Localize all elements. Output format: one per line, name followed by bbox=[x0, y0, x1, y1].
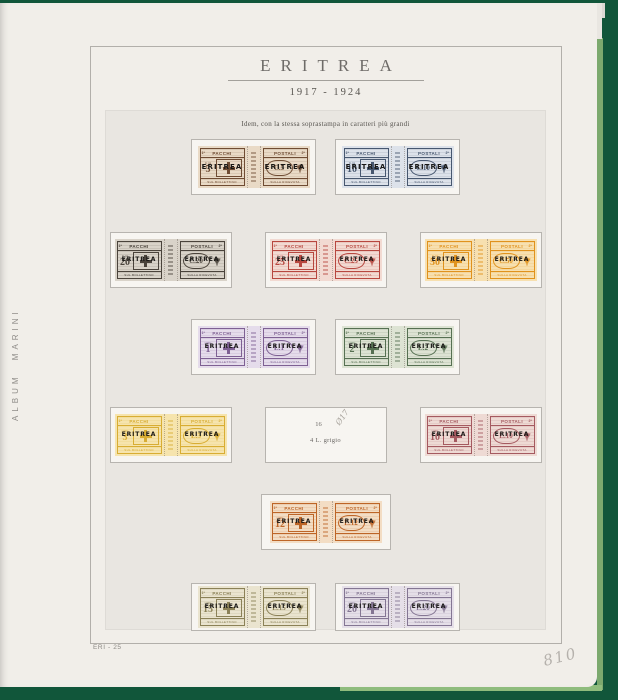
stamp-mount: 1ª PACCHI LIRE 3 SUL BOLLETTINO ERITREA bbox=[110, 407, 232, 463]
stamp-bollettino-label: SUL BOLLETTINO bbox=[201, 358, 244, 365]
stamp-postali-label: POSTALI bbox=[418, 591, 440, 596]
stamp-left-part: 1ª PACCHI C.mi 20 SUL BOLLETTINO ERITREA bbox=[115, 239, 164, 281]
stamp-bollettino-label: SUL BOLLETTINO bbox=[118, 446, 161, 453]
stamp-right-part: POSTALI 2ª L.1 SULLA RICEVUTA ERITREA bbox=[261, 326, 310, 368]
column-ornament-icon bbox=[391, 586, 405, 628]
column-ornament-icon bbox=[391, 326, 405, 368]
stamp-right-part: POSTALI 2ª C.50 SULLA RICEVUTA ERITREA bbox=[488, 239, 537, 281]
stamp-pair: 1ª PACCHI C.mi 20 SUL BOLLETTINO ERITREA bbox=[115, 239, 227, 281]
handwritten-page-number: 810 bbox=[541, 644, 579, 670]
title-underline bbox=[228, 80, 424, 81]
page-header: ERITREA 1917 - 1924 bbox=[91, 56, 561, 98]
page-stack-step bbox=[602, 3, 605, 18]
stamp-top-band: POSTALI 2ª bbox=[491, 242, 534, 251]
stamp-part-number: 2ª bbox=[446, 591, 450, 595]
stamp-top-band: POSTALI 2ª bbox=[408, 589, 451, 598]
eritrea-overprint: ERITREA bbox=[198, 343, 247, 350]
stamp-left-part: 1ª PACCHI LIRE 1 SUL BOLLETTINO ERITREA bbox=[198, 326, 247, 368]
stamp-postali-label: POSTALI bbox=[274, 151, 296, 156]
stamp-bollettino-label: SUL BOLLETTINO bbox=[345, 358, 388, 365]
stamp-part-number: 2ª bbox=[446, 151, 450, 155]
stamp-left-part: 1ª PACCHI C.mi 25 SUL BOLLETTINO ERITREA bbox=[270, 239, 319, 281]
eritrea-overprint: ERITREA bbox=[261, 163, 310, 171]
stamp-row: 1ª PACCHI C.mi 20 SUL BOLLETTINO ERITREA bbox=[106, 232, 545, 288]
eritrea-overprint: ERITREA bbox=[198, 163, 247, 171]
column-ornament-icon bbox=[474, 239, 488, 281]
stamp-pacchi-label: PACCHI bbox=[356, 591, 375, 596]
stamp-right-part: POSTALI 2ª L.10 SULLA RICEVUTA ERITREA bbox=[488, 414, 537, 456]
stamp-part-number: 2ª bbox=[446, 331, 450, 335]
stamp-ricevuta-label: SULLA RICEVUTA bbox=[181, 271, 224, 278]
stamp-row: 1ª PACCHI C.mi 5 SUL BOLLETTINO ERITREA bbox=[106, 139, 545, 195]
stamp-bollettino-label: SUL BOLLETTINO bbox=[273, 533, 316, 540]
eritrea-overprint: ERITREA bbox=[425, 256, 474, 263]
column-ornament-icon bbox=[319, 239, 333, 281]
stamp-top-band: 1ª PACCHI bbox=[201, 589, 244, 598]
eritrea-overprint: ERITREA bbox=[115, 256, 164, 263]
stamp-part-number: 1ª bbox=[119, 244, 123, 248]
stamp-left-part: 1ª PACCHI LIRE 2 SUL BOLLETTINO ERITREA bbox=[342, 326, 391, 368]
stamp-part-number: 1ª bbox=[274, 244, 278, 248]
stamp-left-part: 1ª PACCHI C.mi 10 SUL BOLLETTINO ERITREA bbox=[342, 146, 391, 188]
stamp-right-part: POSTALI 2ª L.12 SULLA RICEVUTA ERITREA bbox=[333, 501, 382, 543]
stamp-right-part: POSTALI 2ª C.20 SULLA RICEVUTA ERITREA bbox=[178, 239, 227, 281]
stamp-mount: 1ª PACCHI C.mi 25 SUL BOLLETTINO ERITREA bbox=[265, 232, 387, 288]
stamp-ricevuta-label: SULLA RICEVUTA bbox=[408, 178, 451, 185]
stamp-left-part: 1ª PACCHI C.mi 50 SUL BOLLETTINO ERITREA bbox=[425, 239, 474, 281]
stamp-right-part: POSTALI 2ª C.25 SULLA RICEVUTA ERITREA bbox=[333, 239, 382, 281]
catalog-number: 16 bbox=[252, 421, 386, 428]
stamp-pair: 1ª PACCHI C.mi 25 SUL BOLLETTINO ERITREA bbox=[270, 239, 382, 281]
stamp-ricevuta-label: SULLA RICEVUTA bbox=[264, 358, 307, 365]
stamp-part-number: 1ª bbox=[274, 506, 278, 510]
stamp-ricevuta-label: SULLA RICEVUTA bbox=[264, 178, 307, 185]
stamp-pair: 1ª PACCHI LIRE 10 SUL BOLLETTINO ERITREA bbox=[425, 414, 537, 456]
stamp-pacchi-label: PACCHI bbox=[284, 244, 303, 249]
stamp-top-band: 1ª PACCHI bbox=[273, 242, 316, 251]
column-ornament-icon bbox=[474, 414, 488, 456]
stamp-postali-label: POSTALI bbox=[191, 419, 213, 424]
stamp-top-band: POSTALI 2ª bbox=[264, 329, 307, 338]
stamp-pair: 1ª PACCHI C.mi 5 SUL BOLLETTINO ERITREA bbox=[198, 146, 310, 188]
stamp-part-number: 2ª bbox=[529, 244, 533, 248]
stamp-right-part: POSTALI 2ª C.10 SULLA RICEVUTA ERITREA bbox=[405, 146, 454, 188]
stamp-top-band: POSTALI 2ª bbox=[264, 589, 307, 598]
stamps-panel: Idem, con la stessa soprastampa in carat… bbox=[105, 110, 546, 630]
stamp-postali-label: POSTALI bbox=[346, 244, 368, 249]
eritrea-overprint: ERITREA bbox=[270, 256, 319, 263]
stamp-right-part: POSTALI 2ª L.20 SULLA RICEVUTA ERITREA bbox=[405, 586, 454, 628]
stamp-pair: 1ª PACCHI LIRE 20 SUL BOLLETTINO ERITREA bbox=[342, 586, 454, 628]
stamp-top-band: 1ª PACCHI bbox=[345, 589, 388, 598]
stamp-top-band: 1ª PACCHI bbox=[428, 242, 471, 251]
stamp-bollettino-label: SUL BOLLETTINO bbox=[201, 178, 244, 185]
stamp-postali-label: POSTALI bbox=[418, 151, 440, 156]
stamp-top-band: POSTALI 2ª bbox=[408, 149, 451, 158]
stamp-mount: 1ª PACCHI LIRE 15 SUL BOLLETTINO ERITREA bbox=[191, 583, 316, 631]
stamp-right-part: POSTALI 2ª L.3 SULLA RICEVUTA ERITREA bbox=[178, 414, 227, 456]
page-edge-highlight bbox=[597, 38, 603, 690]
stamp-rows: 1ª PACCHI C.mi 5 SUL BOLLETTINO ERITREA bbox=[106, 111, 545, 629]
stamp-part-number: 1ª bbox=[346, 591, 350, 595]
eritrea-overprint: ERITREA bbox=[405, 603, 454, 610]
stamp-left-part: 1ª PACCHI C.mi 5 SUL BOLLETTINO ERITREA bbox=[198, 146, 247, 188]
stamp-postali-label: POSTALI bbox=[191, 244, 213, 249]
stamp-mount: 1ª PACCHI C.mi 10 SUL BOLLETTINO ERITREA bbox=[335, 139, 460, 195]
stamp-row: 1ª PACCHI LIRE 15 SUL BOLLETTINO ERITREA bbox=[106, 583, 545, 631]
stamp-pacchi-label: PACCHI bbox=[439, 419, 458, 424]
stamp-ricevuta-label: SULLA RICEVUTA bbox=[336, 533, 379, 540]
stamp-part-number: 2ª bbox=[219, 244, 223, 248]
stamp-ricevuta-label: SULLA RICEVUTA bbox=[408, 618, 451, 625]
eritrea-overprint: ERITREA bbox=[425, 431, 474, 438]
eritrea-overprint: ERITREA bbox=[261, 603, 310, 610]
stamp-top-band: POSTALI 2ª bbox=[181, 417, 224, 426]
missing-stamp-placeholder: 16 Ø17 4 L. grigio bbox=[266, 408, 386, 462]
stamp-bollettino-label: SUL BOLLETTINO bbox=[345, 618, 388, 625]
page-frame: ERITREA 1917 - 1924 Idem, con la stessa … bbox=[90, 46, 562, 644]
stamp-part-number: 2ª bbox=[302, 591, 306, 595]
stamp-top-band: 1ª PACCHI bbox=[201, 329, 244, 338]
stamp-pacchi-label: PACCHI bbox=[129, 419, 148, 424]
stamp-part-number: 1ª bbox=[429, 244, 433, 248]
stamp-part-number: 2ª bbox=[529, 419, 533, 423]
stamp-top-band: 1ª PACCHI bbox=[273, 504, 316, 513]
stamp-pacchi-label: PACCHI bbox=[284, 506, 303, 511]
stamp-mount: 1ª PACCHI LIRE 2 SUL BOLLETTINO ERITREA bbox=[335, 319, 460, 375]
stamp-row: 1ª PACCHI LIRE 1 SUL BOLLETTINO ERITREA bbox=[106, 319, 545, 375]
stamp-top-band: POSTALI 2ª bbox=[181, 242, 224, 251]
stamp-pair: 1ª PACCHI LIRE 2 SUL BOLLETTINO ERITREA bbox=[342, 326, 454, 368]
stamp-bollettino-label: SUL BOLLETTINO bbox=[345, 178, 388, 185]
stamp-pacchi-label: PACCHI bbox=[129, 244, 148, 249]
stamp-pair: 1ª PACCHI LIRE 3 SUL BOLLETTINO ERITREA bbox=[115, 414, 227, 456]
stamp-ricevuta-label: SULLA RICEVUTA bbox=[408, 358, 451, 365]
stamp-mount: 1ª PACCHI LIRE 1 SUL BOLLETTINO ERITREA bbox=[191, 319, 316, 375]
column-ornament-icon bbox=[247, 326, 261, 368]
stamp-mount: 1ª PACCHI LIRE 10 SUL BOLLETTINO ERITREA bbox=[420, 407, 542, 463]
column-ornament-icon bbox=[247, 586, 261, 628]
eritrea-overprint: ERITREA bbox=[342, 603, 391, 610]
stamp-left-part: 1ª PACCHI LIRE 3 SUL BOLLETTINO ERITREA bbox=[115, 414, 164, 456]
stamp-row: 1ª PACCHI LIRE 12 SUL BOLLETTINO ERITREA bbox=[106, 494, 545, 550]
stamp-postali-label: POSTALI bbox=[274, 331, 296, 336]
stamp-right-part: POSTALI 2ª L.15 SULLA RICEVUTA ERITREA bbox=[261, 586, 310, 628]
stamp-ricevuta-label: SULLA RICEVUTA bbox=[336, 271, 379, 278]
stamp-mount: 1ª PACCHI C.mi 20 SUL BOLLETTINO ERITREA bbox=[110, 232, 232, 288]
stamp-bollettino-label: SUL BOLLETTINO bbox=[428, 271, 471, 278]
stamp-bollettino-label: SUL BOLLETTINO bbox=[273, 271, 316, 278]
eritrea-overprint: ERITREA bbox=[115, 431, 164, 438]
stamp-part-number: 1ª bbox=[119, 419, 123, 423]
stamp-mount: 1ª PACCHI LIRE 20 SUL BOLLETTINO ERITREA bbox=[335, 583, 460, 631]
stamp-bollettino-label: SUL BOLLETTINO bbox=[118, 271, 161, 278]
stamp-postali-label: POSTALI bbox=[418, 331, 440, 336]
stamp-part-number: 2ª bbox=[302, 151, 306, 155]
stamp-part-number: 2ª bbox=[374, 244, 378, 248]
stamp-top-band: POSTALI 2ª bbox=[336, 242, 379, 251]
stamp-top-band: 1ª PACCHI bbox=[201, 149, 244, 158]
eritrea-overprint: ERITREA bbox=[405, 343, 454, 350]
stamp-row: 1ª PACCHI LIRE 3 SUL BOLLETTINO ERITREA bbox=[106, 407, 545, 463]
stamp-bollettino-label: SUL BOLLETTINO bbox=[428, 446, 471, 453]
stamp-part-number: 1ª bbox=[202, 591, 206, 595]
stamp-postali-label: POSTALI bbox=[274, 591, 296, 596]
album-photo: ALBUM MARINI ERITREA 1917 - 1924 Idem, c… bbox=[0, 0, 618, 700]
eritrea-overprint: ERITREA bbox=[333, 256, 382, 263]
stamp-top-band: 1ª PACCHI bbox=[345, 329, 388, 338]
stamp-top-band: 1ª PACCHI bbox=[118, 242, 161, 251]
stamp-left-part: 1ª PACCHI LIRE 15 SUL BOLLETTINO ERITREA bbox=[198, 586, 247, 628]
stamp-postali-label: POSTALI bbox=[501, 419, 523, 424]
stamp-left-part: 1ª PACCHI LIRE 20 SUL BOLLETTINO ERITREA bbox=[342, 586, 391, 628]
eritrea-overprint: ERITREA bbox=[198, 603, 247, 610]
stamp-part-number: 2ª bbox=[374, 506, 378, 510]
stamp-ricevuta-label: SULLA RICEVUTA bbox=[264, 618, 307, 625]
stamp-pair: 1ª PACCHI C.mi 10 SUL BOLLETTINO ERITREA bbox=[342, 146, 454, 188]
stamp-postali-label: POSTALI bbox=[346, 506, 368, 511]
stamp-left-part: 1ª PACCHI LIRE 10 SUL BOLLETTINO ERITREA bbox=[425, 414, 474, 456]
column-ornament-icon bbox=[164, 414, 178, 456]
stamp-pair: 1ª PACCHI LIRE 1 SUL BOLLETTINO ERITREA bbox=[198, 326, 310, 368]
stamp-pacchi-label: PACCHI bbox=[356, 151, 375, 156]
stamp-part-number: 1ª bbox=[202, 151, 206, 155]
stamp-mount: 1ª PACCHI C.mi 50 SUL BOLLETTINO ERITREA bbox=[420, 232, 542, 288]
eritrea-overprint: ERITREA bbox=[178, 431, 227, 438]
stamp-left-part: 1ª PACCHI LIRE 12 SUL BOLLETTINO ERITREA bbox=[270, 501, 319, 543]
stamp-part-number: 2ª bbox=[302, 331, 306, 335]
stamp-pair: 1ª PACCHI LIRE 15 SUL BOLLETTINO ERITREA bbox=[198, 586, 310, 628]
stamp-right-part: POSTALI 2ª L.2 SULLA RICEVUTA ERITREA bbox=[405, 326, 454, 368]
eritrea-overprint: ERITREA bbox=[270, 518, 319, 525]
stamp-mount: 1ª PACCHI C.mi 5 SUL BOLLETTINO ERITREA bbox=[191, 139, 316, 195]
stamp-part-number: 1ª bbox=[429, 419, 433, 423]
album-brand-label: ALBUM MARINI bbox=[11, 291, 20, 421]
stamp-pacchi-label: PACCHI bbox=[212, 591, 231, 596]
stamp-postali-label: POSTALI bbox=[501, 244, 523, 249]
stamp-top-band: 1ª PACCHI bbox=[345, 149, 388, 158]
stamp-pacchi-label: PACCHI bbox=[439, 244, 458, 249]
stamp-top-band: 1ª PACCHI bbox=[428, 417, 471, 426]
column-ornament-icon bbox=[319, 501, 333, 543]
eritrea-overprint: ERITREA bbox=[342, 343, 391, 350]
stamp-top-band: POSTALI 2ª bbox=[408, 329, 451, 338]
stamp-pacchi-label: PACCHI bbox=[212, 151, 231, 156]
eritrea-overprint: ERITREA bbox=[342, 163, 391, 171]
stamp-top-band: 1ª PACCHI bbox=[118, 417, 161, 426]
eritrea-overprint: ERITREA bbox=[405, 163, 454, 171]
column-ornament-icon bbox=[247, 146, 261, 188]
stamp-top-band: POSTALI 2ª bbox=[336, 504, 379, 513]
album-page: ALBUM MARINI ERITREA 1917 - 1924 Idem, c… bbox=[0, 3, 597, 687]
placeholder-mount: 16 Ø17 4 L. grigio bbox=[265, 407, 387, 463]
stamp-top-band: POSTALI 2ª bbox=[491, 417, 534, 426]
stamp-pacchi-label: PACCHI bbox=[212, 331, 231, 336]
stamp-part-number: 1ª bbox=[202, 331, 206, 335]
stamp-pair: 1ª PACCHI C.mi 50 SUL BOLLETTINO ERITREA bbox=[425, 239, 537, 281]
page-title: ERITREA bbox=[91, 56, 561, 76]
stamp-mount: 1ª PACCHI LIRE 12 SUL BOLLETTINO ERITREA bbox=[261, 494, 391, 550]
eritrea-overprint: ERITREA bbox=[488, 256, 537, 263]
stamp-right-part: POSTALI 2ª C.5 SULLA RICEVUTA ERITREA bbox=[261, 146, 310, 188]
page-years: 1917 - 1924 bbox=[91, 87, 561, 98]
stamp-part-number: 1ª bbox=[346, 331, 350, 335]
stamp-bollettino-label: SUL BOLLETTINO bbox=[201, 618, 244, 625]
stamp-pacchi-label: PACCHI bbox=[356, 331, 375, 336]
stamp-part-number: 1ª bbox=[346, 151, 350, 155]
stamp-part-number: 2ª bbox=[219, 419, 223, 423]
stamp-ricevuta-label: SULLA RICEVUTA bbox=[491, 446, 534, 453]
stamp-ricevuta-label: SULLA RICEVUTA bbox=[491, 271, 534, 278]
eritrea-overprint: ERITREA bbox=[261, 343, 310, 350]
stamp-top-band: POSTALI 2ª bbox=[264, 149, 307, 158]
eritrea-overprint: ERITREA bbox=[178, 256, 227, 263]
column-ornament-icon bbox=[164, 239, 178, 281]
missing-stamp-caption: 4 L. grigio bbox=[266, 437, 386, 444]
eritrea-overprint: ERITREA bbox=[333, 518, 382, 525]
eritrea-overprint: ERITREA bbox=[488, 431, 537, 438]
stamp-ricevuta-label: SULLA RICEVUTA bbox=[181, 446, 224, 453]
page-code: ERI - 25 bbox=[93, 644, 122, 651]
stamp-pair: 1ª PACCHI LIRE 12 SUL BOLLETTINO ERITREA bbox=[270, 501, 382, 543]
column-ornament-icon bbox=[391, 146, 405, 188]
